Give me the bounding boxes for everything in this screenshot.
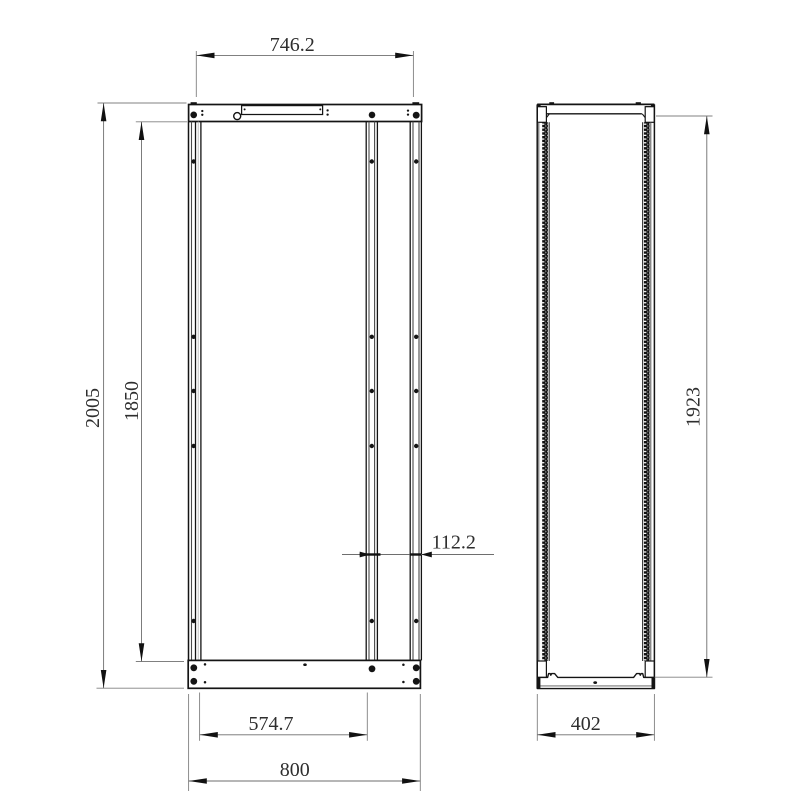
svg-text:112.2: 112.2 <box>432 531 476 553</box>
svg-text:402: 402 <box>571 713 601 735</box>
svg-text:800: 800 <box>280 759 310 781</box>
svg-text:2005: 2005 <box>82 388 104 428</box>
svg-text:574.7: 574.7 <box>249 713 294 735</box>
svg-text:1923: 1923 <box>683 387 705 427</box>
svg-text:1850: 1850 <box>121 381 143 421</box>
svg-text:746.2: 746.2 <box>270 34 315 56</box>
